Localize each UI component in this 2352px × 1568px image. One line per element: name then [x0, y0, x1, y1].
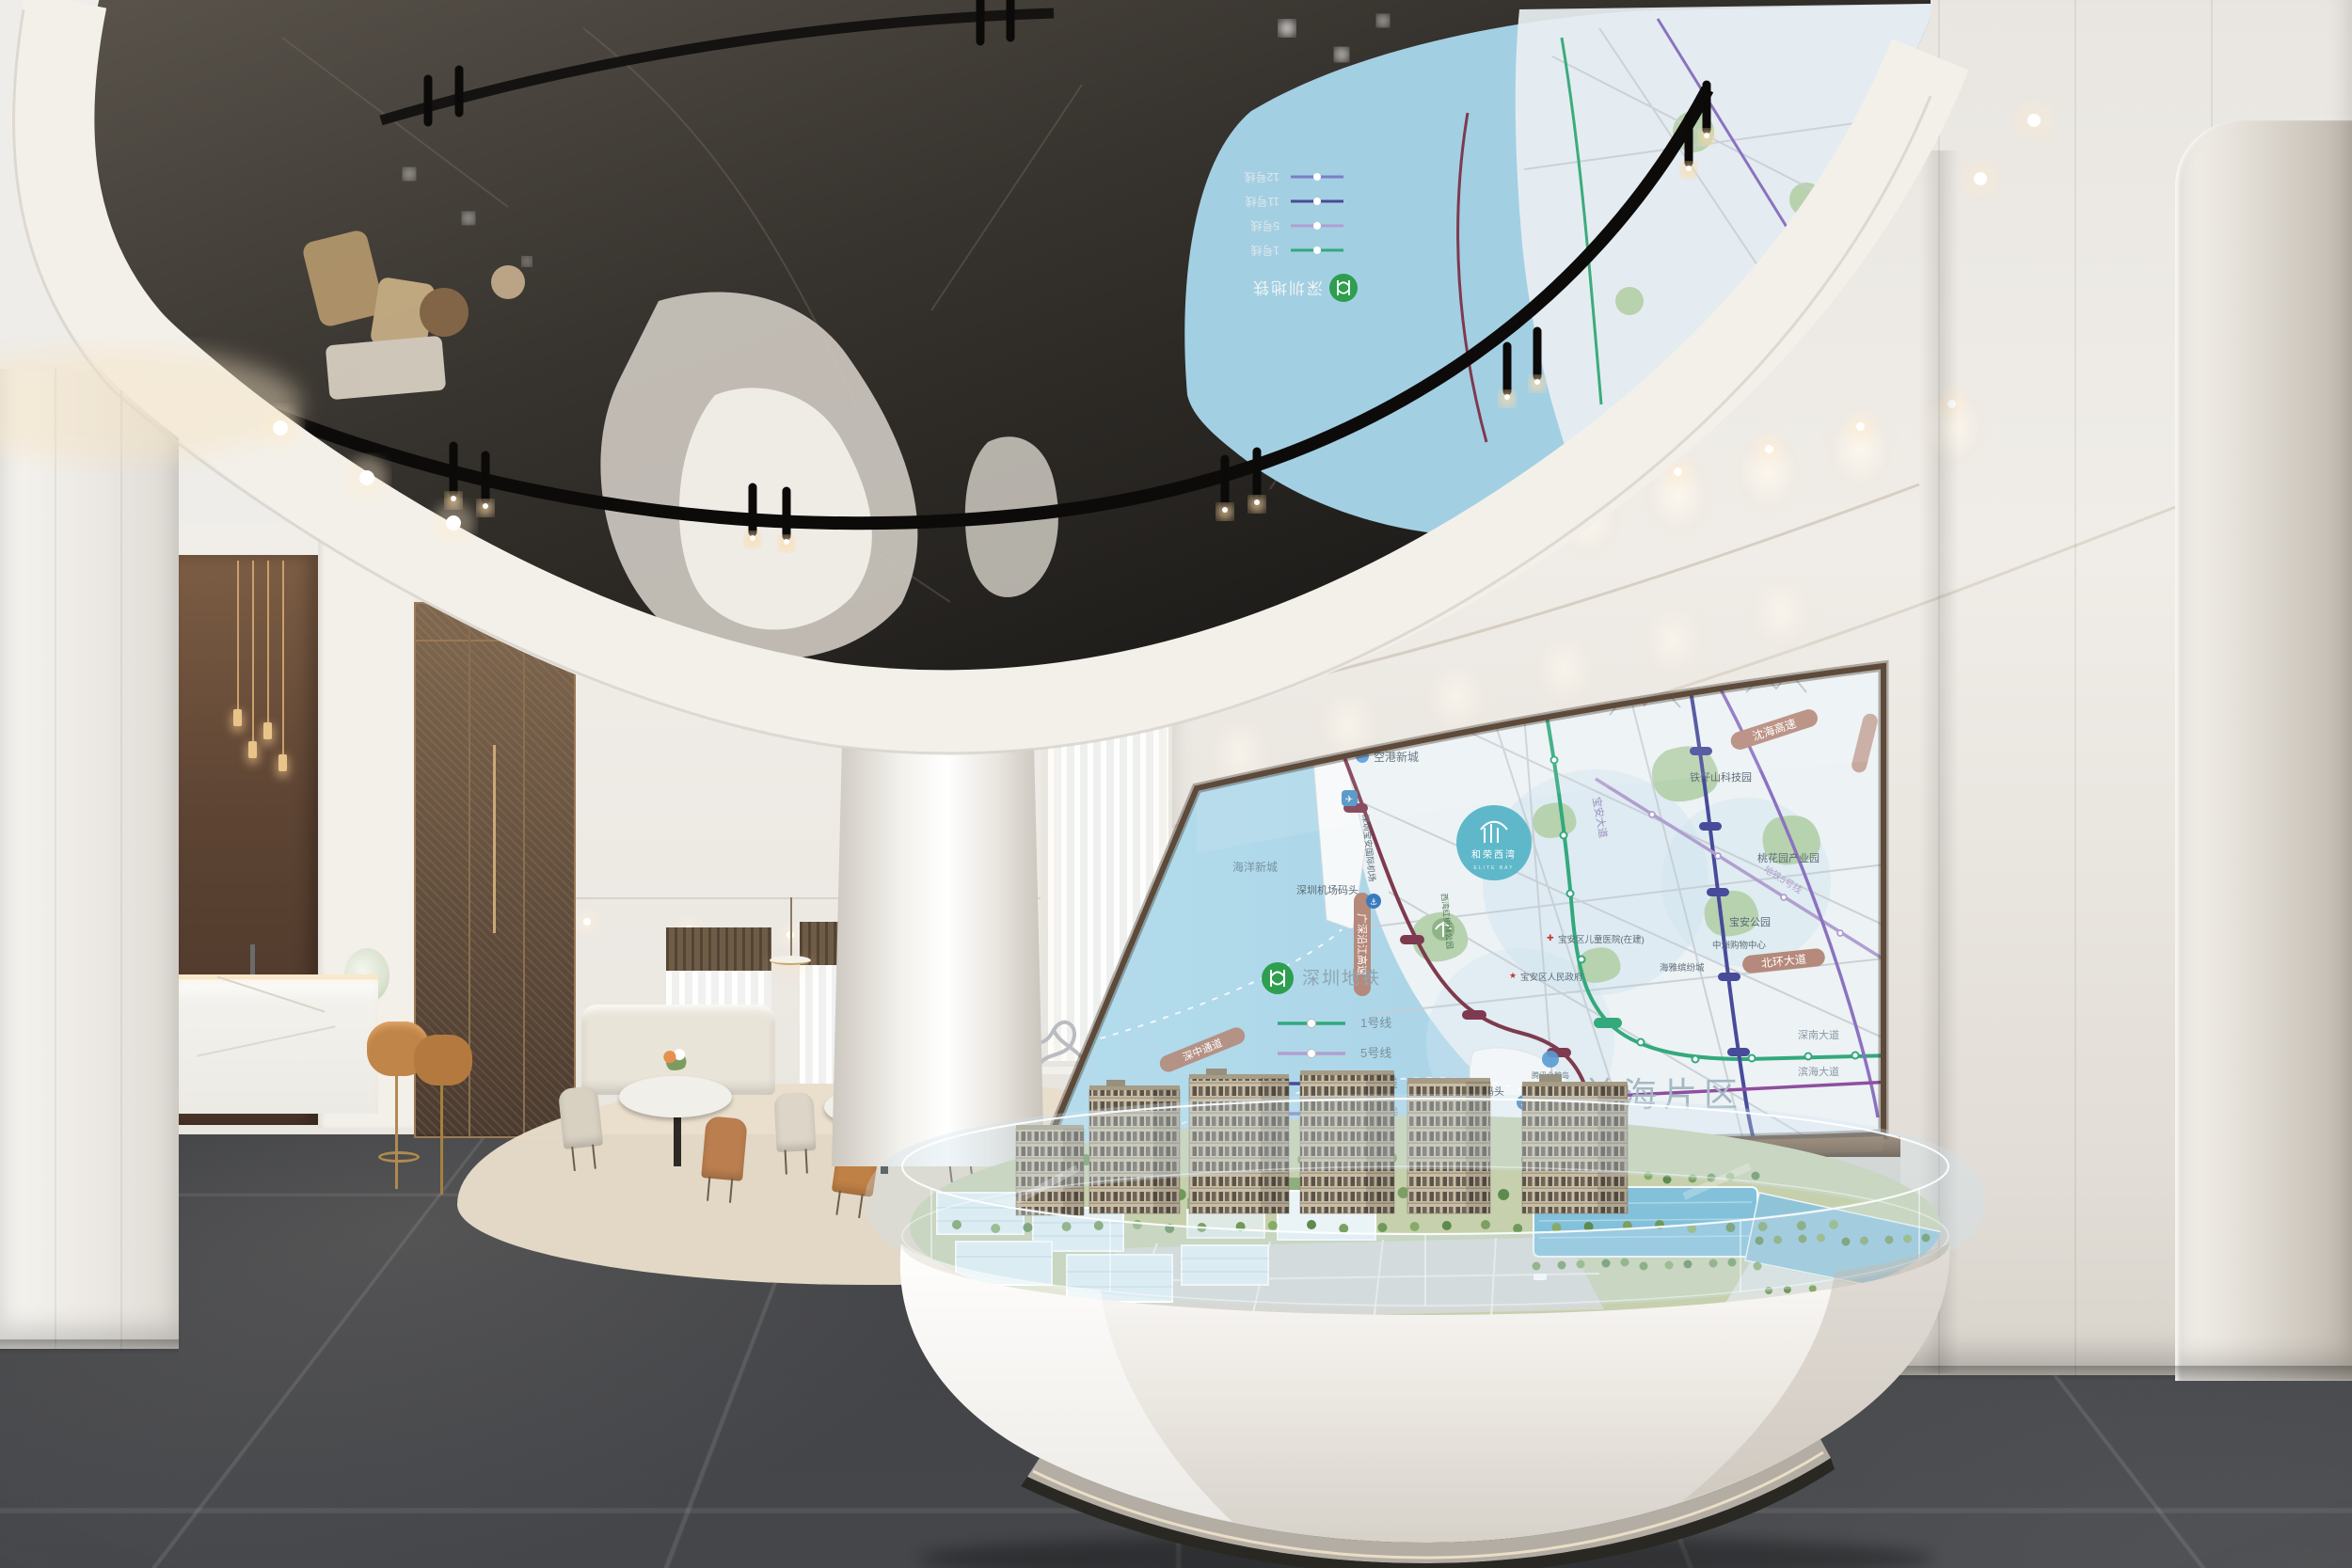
leather-bar-stool-seat — [414, 1035, 472, 1085]
pendant-light-stem — [790, 897, 792, 958]
counter-faucet — [250, 944, 255, 974]
marble-vein — [217, 976, 326, 1013]
mirrored-ceiling: 深圳地铁 1号线 5号线 11号线 12号线 — [0, 0, 2352, 781]
dining-chair — [773, 1092, 816, 1152]
scale-model-podium — [875, 1008, 1980, 1568]
dining-chair — [558, 1085, 603, 1149]
brass-stool-leg — [395, 1076, 398, 1189]
counter-led-strip — [177, 974, 378, 979]
table-flowers — [659, 1046, 691, 1070]
disc-pendant-light — [770, 956, 811, 965]
dining-chair — [701, 1116, 748, 1181]
recessed-downlight — [583, 918, 591, 926]
wall-base-shadow — [0, 1339, 179, 1354]
brass-stool-leg — [440, 1084, 443, 1195]
svg-text:深圳地铁: 深圳地铁 — [1251, 278, 1323, 296]
svg-text:12号线: 12号线 — [1245, 170, 1279, 183]
sales-gallery-photo: 沈海高速 广深沿江高速 深中通道 北环大道 深南大道 滨海大道 宝安大道 地铁5… — [0, 0, 2352, 1568]
svg-text:5号线: 5号线 — [1250, 219, 1279, 232]
curtain-valance — [666, 927, 771, 971]
stool-foot-ring — [378, 1151, 420, 1163]
marble-vein — [197, 1025, 335, 1056]
svg-text:11号线: 11号线 — [1246, 195, 1279, 208]
marble-reception-counter — [177, 974, 378, 1114]
round-marble-table — [619, 1076, 732, 1117]
svg-text:1号线: 1号线 — [1250, 244, 1279, 257]
